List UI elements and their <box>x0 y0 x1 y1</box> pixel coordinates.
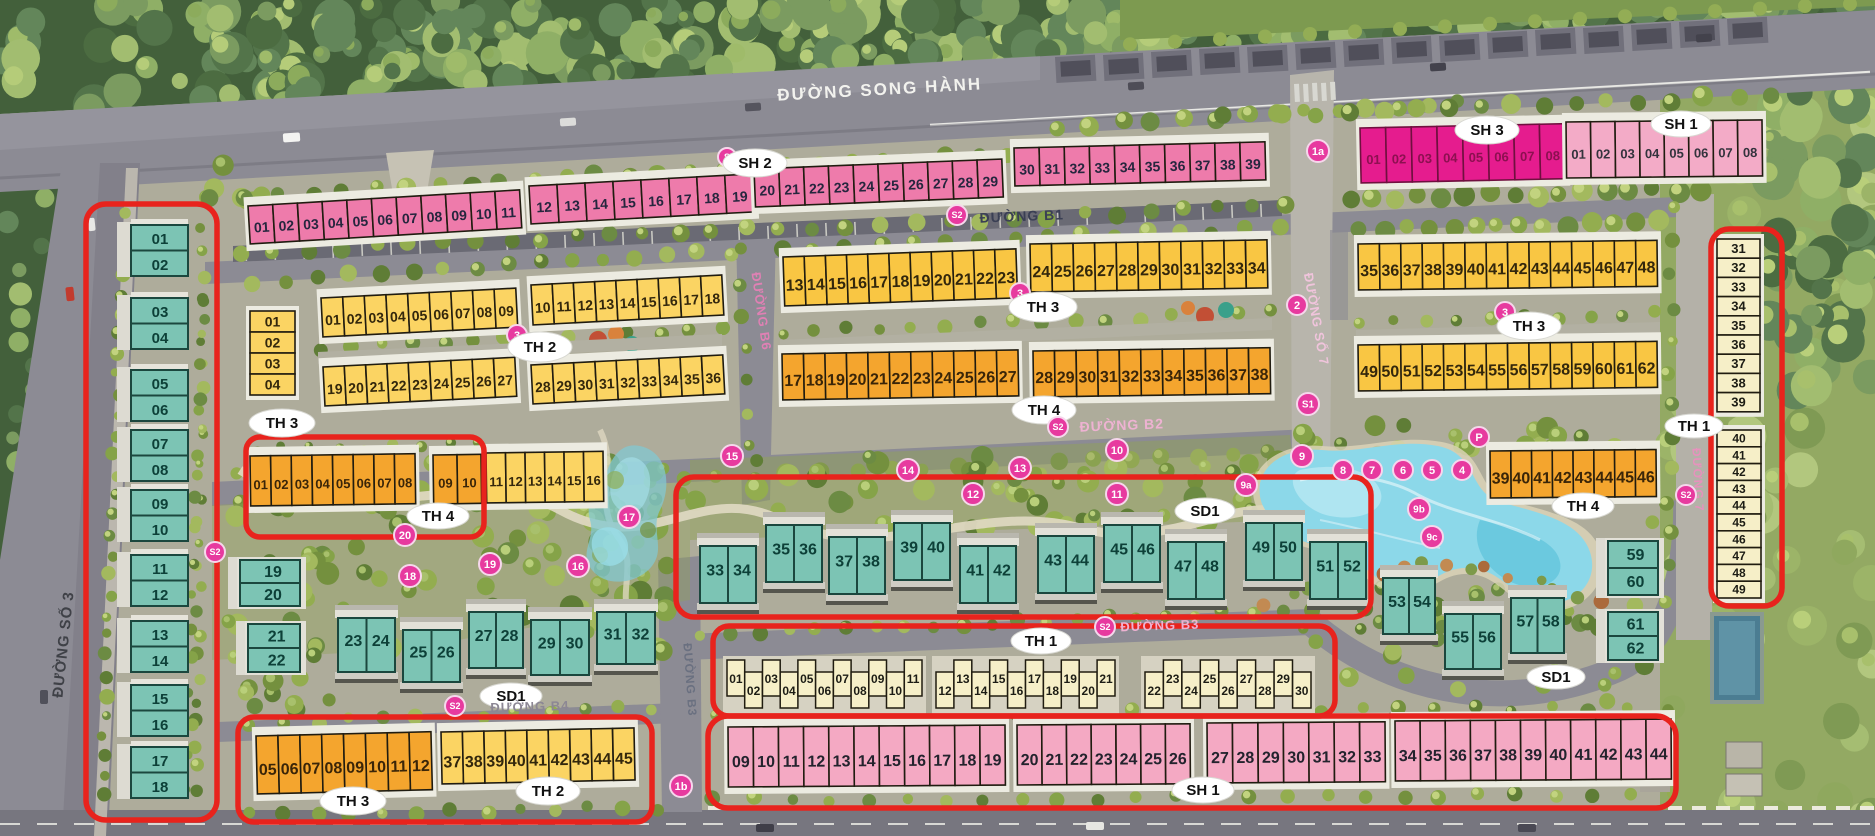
svg-text:12: 12 <box>536 199 553 216</box>
svg-text:52: 52 <box>1343 558 1361 575</box>
svg-text:08: 08 <box>426 208 443 225</box>
svg-text:58: 58 <box>1552 362 1570 379</box>
svg-text:06: 06 <box>433 306 450 323</box>
svg-text:25: 25 <box>1203 672 1217 686</box>
svg-text:44: 44 <box>1732 499 1746 513</box>
svg-text:08: 08 <box>476 304 493 321</box>
svg-text:37: 37 <box>1195 157 1211 173</box>
svg-text:01: 01 <box>152 231 169 248</box>
svg-text:14: 14 <box>592 196 609 213</box>
svg-text:38: 38 <box>862 553 880 570</box>
svg-text:15: 15 <box>620 194 637 211</box>
svg-text:13: 13 <box>152 627 169 644</box>
svg-text:34: 34 <box>1399 748 1417 765</box>
svg-text:13: 13 <box>528 474 543 489</box>
svg-text:26: 26 <box>437 644 455 661</box>
svg-text:10: 10 <box>368 759 386 776</box>
svg-text:41: 41 <box>1574 747 1592 764</box>
svg-text:03: 03 <box>265 355 281 371</box>
svg-text:23: 23 <box>1095 752 1113 769</box>
svg-text:18: 18 <box>958 752 976 769</box>
svg-text:30: 30 <box>577 376 594 393</box>
svg-text:09: 09 <box>451 207 468 224</box>
svg-text:10: 10 <box>152 522 169 539</box>
svg-text:03: 03 <box>368 309 385 326</box>
svg-text:27: 27 <box>1097 263 1115 280</box>
svg-text:35: 35 <box>1186 368 1204 385</box>
svg-text:36: 36 <box>1170 158 1186 174</box>
svg-text:33: 33 <box>1143 368 1161 385</box>
svg-text:19: 19 <box>1064 672 1078 686</box>
svg-text:42: 42 <box>1510 261 1528 278</box>
svg-text:01: 01 <box>265 313 281 329</box>
svg-text:28: 28 <box>1035 370 1053 387</box>
svg-text:30: 30 <box>1287 750 1305 767</box>
svg-text:32: 32 <box>620 374 637 391</box>
svg-text:SD1: SD1 <box>1190 503 1219 520</box>
svg-text:33: 33 <box>1226 261 1244 278</box>
svg-text:11: 11 <box>907 672 920 686</box>
svg-text:59: 59 <box>1627 547 1645 564</box>
svg-text:54: 54 <box>1413 594 1431 611</box>
svg-text:03: 03 <box>152 304 169 321</box>
svg-text:46: 46 <box>1137 541 1155 558</box>
svg-text:03: 03 <box>1417 151 1432 166</box>
svg-text:06: 06 <box>818 684 832 698</box>
svg-text:42: 42 <box>1600 747 1618 764</box>
svg-text:14: 14 <box>807 276 825 294</box>
svg-text:47: 47 <box>1174 558 1192 575</box>
svg-text:08: 08 <box>1743 145 1758 160</box>
svg-text:41: 41 <box>966 562 984 579</box>
svg-text:13: 13 <box>785 277 803 295</box>
svg-text:48: 48 <box>1638 259 1656 276</box>
svg-text:38: 38 <box>1499 747 1517 764</box>
svg-text:20: 20 <box>348 379 365 396</box>
svg-text:39: 39 <box>1524 747 1542 764</box>
svg-text:46: 46 <box>1732 532 1746 546</box>
svg-text:S2: S2 <box>1099 622 1110 632</box>
svg-text:14: 14 <box>974 684 988 698</box>
svg-text:03: 03 <box>295 477 310 492</box>
svg-text:09: 09 <box>871 672 885 686</box>
svg-text:12: 12 <box>967 489 979 501</box>
svg-text:07: 07 <box>1520 149 1535 164</box>
svg-text:06: 06 <box>281 761 299 778</box>
svg-text:17: 17 <box>676 191 693 208</box>
svg-text:32: 32 <box>1731 260 1745 275</box>
svg-text:50: 50 <box>1279 539 1297 556</box>
svg-text:07: 07 <box>377 475 392 490</box>
svg-text:40: 40 <box>927 539 945 556</box>
svg-text:34: 34 <box>662 372 679 389</box>
svg-text:21: 21 <box>268 628 286 645</box>
svg-text:35: 35 <box>772 541 790 558</box>
svg-text:29: 29 <box>556 377 573 394</box>
svg-text:12: 12 <box>807 754 825 771</box>
svg-text:38: 38 <box>1251 367 1269 384</box>
svg-text:35: 35 <box>1145 158 1161 174</box>
svg-text:18: 18 <box>404 571 416 583</box>
svg-text:26: 26 <box>1075 263 1093 280</box>
svg-text:47: 47 <box>1732 549 1746 563</box>
svg-text:25: 25 <box>956 370 974 387</box>
svg-text:27: 27 <box>933 175 949 192</box>
svg-text:TH 2: TH 2 <box>524 339 557 356</box>
svg-text:61: 61 <box>1616 361 1634 378</box>
svg-text:SD1: SD1 <box>1541 669 1570 686</box>
svg-text:52: 52 <box>1424 363 1442 380</box>
svg-text:40: 40 <box>1467 262 1485 279</box>
svg-text:38: 38 <box>1731 375 1745 390</box>
svg-text:SH 2: SH 2 <box>738 155 771 172</box>
svg-text:1b: 1b <box>675 781 688 793</box>
svg-text:TH 3: TH 3 <box>1027 299 1060 316</box>
svg-text:19: 19 <box>984 752 1002 769</box>
svg-text:29: 29 <box>982 173 998 190</box>
svg-text:20: 20 <box>849 372 867 389</box>
svg-text:07: 07 <box>836 672 850 686</box>
svg-text:12: 12 <box>152 587 169 604</box>
svg-text:56: 56 <box>1510 362 1528 379</box>
svg-text:17: 17 <box>1028 672 1042 686</box>
svg-text:27: 27 <box>1211 750 1229 767</box>
svg-text:06: 06 <box>1694 145 1709 160</box>
svg-text:25: 25 <box>1054 264 1072 281</box>
svg-text:03: 03 <box>765 672 779 686</box>
svg-text:26: 26 <box>908 176 924 193</box>
svg-text:07: 07 <box>1718 145 1733 160</box>
svg-text:16: 16 <box>908 753 926 770</box>
svg-text:31: 31 <box>1313 749 1331 766</box>
svg-text:5: 5 <box>1429 465 1435 477</box>
svg-text:44: 44 <box>1595 470 1613 487</box>
svg-text:17: 17 <box>870 274 888 292</box>
svg-text:12: 12 <box>938 684 952 698</box>
svg-text:07: 07 <box>152 436 169 453</box>
svg-text:22: 22 <box>809 180 825 197</box>
svg-text:32: 32 <box>632 626 650 643</box>
svg-text:27: 27 <box>999 369 1017 386</box>
svg-text:18: 18 <box>806 372 824 389</box>
svg-text:ĐƯỜNG B3: ĐƯỜNG B3 <box>1120 617 1199 635</box>
svg-text:P: P <box>1475 432 1482 444</box>
svg-text:SH 1: SH 1 <box>1186 782 1219 799</box>
svg-text:23: 23 <box>345 633 363 650</box>
svg-text:39: 39 <box>1445 262 1463 279</box>
svg-text:8: 8 <box>1340 465 1346 477</box>
svg-text:39: 39 <box>1731 395 1745 410</box>
svg-text:05: 05 <box>336 476 351 491</box>
svg-text:30: 30 <box>1295 684 1309 698</box>
svg-text:04: 04 <box>315 476 330 491</box>
svg-text:40: 40 <box>508 753 526 770</box>
svg-text:9b: 9b <box>1413 505 1425 516</box>
svg-text:49: 49 <box>1732 583 1746 597</box>
svg-text:TH 4: TH 4 <box>422 508 455 525</box>
svg-text:TH 1: TH 1 <box>1678 418 1711 435</box>
svg-text:16: 16 <box>662 292 679 309</box>
svg-text:13: 13 <box>598 296 615 313</box>
svg-text:9: 9 <box>1299 451 1305 463</box>
svg-text:01: 01 <box>1366 152 1381 167</box>
svg-text:28: 28 <box>535 378 552 395</box>
svg-text:32: 32 <box>1069 160 1085 176</box>
svg-text:36: 36 <box>799 541 817 558</box>
svg-text:08: 08 <box>398 475 413 490</box>
svg-text:33: 33 <box>1731 279 1745 294</box>
svg-text:08: 08 <box>853 684 867 698</box>
svg-text:37: 37 <box>1731 356 1745 371</box>
svg-text:40: 40 <box>1512 470 1530 487</box>
svg-text:36: 36 <box>1207 367 1225 384</box>
svg-text:10: 10 <box>462 475 477 490</box>
svg-text:36: 36 <box>705 369 722 386</box>
svg-text:51: 51 <box>1316 558 1334 575</box>
svg-text:22: 22 <box>891 371 909 388</box>
svg-text:20: 20 <box>1082 684 1096 698</box>
svg-text:20: 20 <box>264 587 282 604</box>
svg-text:12: 12 <box>412 758 430 775</box>
svg-text:43: 43 <box>572 751 590 768</box>
svg-text:21: 21 <box>955 271 973 289</box>
svg-text:54: 54 <box>1467 363 1485 380</box>
svg-text:11: 11 <box>556 298 572 315</box>
svg-text:S2: S2 <box>1052 422 1063 432</box>
svg-text:31: 31 <box>1731 241 1745 256</box>
svg-text:39: 39 <box>486 753 504 770</box>
svg-text:16: 16 <box>152 717 169 734</box>
svg-text:05: 05 <box>800 672 814 686</box>
svg-text:18: 18 <box>1046 684 1060 698</box>
svg-text:21: 21 <box>1099 672 1113 686</box>
svg-text:59: 59 <box>1574 361 1592 378</box>
svg-text:18: 18 <box>152 779 169 796</box>
svg-text:43: 43 <box>1732 482 1746 496</box>
svg-text:14: 14 <box>547 473 562 488</box>
svg-text:04: 04 <box>390 308 407 325</box>
svg-text:13: 13 <box>956 672 970 686</box>
svg-text:SH 3: SH 3 <box>1470 122 1503 139</box>
svg-text:29: 29 <box>1140 262 1158 279</box>
svg-text:61: 61 <box>1627 616 1645 633</box>
svg-text:S2: S2 <box>449 701 460 711</box>
svg-text:21: 21 <box>1045 752 1063 769</box>
svg-text:31: 31 <box>1100 369 1118 386</box>
svg-text:43: 43 <box>1044 552 1062 569</box>
svg-text:10: 10 <box>889 684 903 698</box>
svg-text:29: 29 <box>1262 750 1280 767</box>
svg-text:57: 57 <box>1516 614 1534 631</box>
svg-text:14: 14 <box>858 753 876 770</box>
svg-text:15: 15 <box>828 276 846 294</box>
svg-text:45: 45 <box>1110 541 1128 558</box>
svg-text:TH 3: TH 3 <box>337 793 370 810</box>
svg-text:36: 36 <box>1731 337 1745 352</box>
svg-text:43: 43 <box>1531 261 1549 278</box>
svg-text:31: 31 <box>1183 261 1201 278</box>
svg-text:09: 09 <box>152 496 169 513</box>
svg-text:60: 60 <box>1627 574 1645 591</box>
svg-text:05: 05 <box>1469 150 1484 165</box>
svg-text:41: 41 <box>1533 470 1551 487</box>
svg-text:42: 42 <box>550 752 568 769</box>
svg-text:23: 23 <box>913 371 931 388</box>
svg-text:27: 27 <box>497 372 514 389</box>
svg-text:24: 24 <box>934 370 952 387</box>
svg-text:55: 55 <box>1488 362 1506 379</box>
svg-text:22: 22 <box>1148 684 1162 698</box>
svg-text:2: 2 <box>1294 300 1300 312</box>
svg-text:19: 19 <box>264 564 282 581</box>
svg-text:39: 39 <box>900 539 918 556</box>
svg-text:06: 06 <box>377 211 394 228</box>
svg-text:01: 01 <box>253 219 270 236</box>
svg-text:01: 01 <box>325 311 342 328</box>
svg-text:06: 06 <box>1494 149 1509 164</box>
svg-text:34: 34 <box>733 562 751 579</box>
svg-text:50: 50 <box>1381 364 1399 381</box>
svg-text:16: 16 <box>648 193 665 210</box>
svg-text:37: 37 <box>1229 367 1247 384</box>
svg-text:03: 03 <box>1620 146 1635 161</box>
svg-text:12: 12 <box>508 474 523 489</box>
svg-text:44: 44 <box>1071 552 1089 569</box>
svg-text:38: 38 <box>1220 156 1236 172</box>
svg-text:26: 26 <box>977 369 995 386</box>
svg-text:30: 30 <box>1078 369 1096 386</box>
svg-text:43: 43 <box>1625 746 1643 763</box>
svg-text:03: 03 <box>303 216 320 233</box>
svg-text:11: 11 <box>489 474 503 489</box>
svg-text:20: 20 <box>759 182 775 199</box>
svg-text:24: 24 <box>1119 751 1137 768</box>
svg-text:53: 53 <box>1445 363 1463 380</box>
svg-text:41: 41 <box>1732 448 1746 462</box>
svg-text:19: 19 <box>327 380 344 397</box>
svg-text:17: 17 <box>152 753 169 770</box>
svg-text:22: 22 <box>391 377 408 394</box>
svg-text:24: 24 <box>433 375 450 392</box>
svg-text:01: 01 <box>729 672 743 686</box>
svg-text:11: 11 <box>783 754 800 771</box>
svg-text:02: 02 <box>747 684 761 698</box>
svg-text:36: 36 <box>1449 748 1467 765</box>
svg-text:28: 28 <box>957 174 973 191</box>
svg-text:37: 37 <box>443 754 461 771</box>
svg-text:32: 32 <box>1121 369 1139 386</box>
svg-text:20: 20 <box>934 272 952 290</box>
svg-text:49: 49 <box>1360 364 1378 381</box>
svg-text:17: 17 <box>784 373 802 390</box>
svg-text:11: 11 <box>501 204 517 221</box>
svg-text:29: 29 <box>1277 672 1291 686</box>
svg-text:05: 05 <box>259 762 277 779</box>
svg-text:09: 09 <box>498 303 515 320</box>
svg-text:08: 08 <box>152 462 169 479</box>
svg-text:04: 04 <box>327 214 344 231</box>
svg-text:62: 62 <box>1638 360 1656 377</box>
svg-text:34: 34 <box>1248 260 1266 277</box>
svg-text:40: 40 <box>1732 432 1746 446</box>
svg-text:35: 35 <box>1424 748 1442 765</box>
svg-text:35: 35 <box>1731 318 1745 333</box>
svg-text:16: 16 <box>586 473 601 488</box>
svg-text:49: 49 <box>1252 539 1270 556</box>
svg-text:15: 15 <box>883 753 901 770</box>
svg-text:25: 25 <box>410 644 428 661</box>
svg-text:14: 14 <box>152 653 169 670</box>
svg-text:16: 16 <box>572 561 584 573</box>
svg-text:27: 27 <box>475 628 493 645</box>
svg-text:24: 24 <box>1184 684 1198 698</box>
svg-text:42: 42 <box>1554 470 1572 487</box>
svg-text:23: 23 <box>1166 672 1180 686</box>
svg-text:08: 08 <box>1545 148 1560 163</box>
svg-text:TH 3: TH 3 <box>266 415 299 432</box>
svg-text:S2: S2 <box>951 210 962 220</box>
svg-text:34: 34 <box>1164 368 1182 385</box>
svg-text:21: 21 <box>369 378 386 395</box>
svg-text:60: 60 <box>1595 361 1613 378</box>
svg-text:24: 24 <box>858 178 874 195</box>
svg-text:7: 7 <box>1369 465 1375 477</box>
svg-text:33: 33 <box>1364 749 1382 766</box>
svg-text:02: 02 <box>278 217 295 234</box>
svg-text:42: 42 <box>1732 465 1746 479</box>
svg-text:28: 28 <box>1118 262 1136 279</box>
svg-text:09: 09 <box>732 754 750 771</box>
svg-text:18: 18 <box>704 290 721 307</box>
svg-text:44: 44 <box>1650 746 1668 763</box>
svg-text:05: 05 <box>152 376 169 393</box>
svg-text:45: 45 <box>1574 260 1592 277</box>
svg-text:46: 46 <box>1637 469 1655 486</box>
svg-text:31: 31 <box>1044 161 1060 177</box>
svg-text:21: 21 <box>784 181 800 198</box>
svg-text:32: 32 <box>1205 261 1223 278</box>
svg-text:28: 28 <box>1258 684 1272 698</box>
svg-text:22: 22 <box>1070 752 1088 769</box>
svg-text:02: 02 <box>265 334 281 350</box>
svg-text:10: 10 <box>535 299 552 316</box>
svg-text:29: 29 <box>538 636 556 653</box>
svg-text:30: 30 <box>566 636 584 653</box>
svg-text:45: 45 <box>1616 469 1634 486</box>
svg-text:16: 16 <box>1010 684 1024 698</box>
svg-text:26: 26 <box>1169 751 1187 768</box>
svg-text:20: 20 <box>399 530 411 542</box>
svg-text:14: 14 <box>902 465 915 477</box>
svg-text:42: 42 <box>993 562 1011 579</box>
svg-text:16: 16 <box>849 275 867 293</box>
svg-text:47: 47 <box>1616 260 1634 277</box>
svg-text:06: 06 <box>356 476 371 491</box>
svg-text:48: 48 <box>1732 566 1746 580</box>
svg-text:ĐƯỜNG B4: ĐƯỜNG B4 <box>490 698 569 715</box>
svg-text:10: 10 <box>1111 445 1123 457</box>
svg-text:07: 07 <box>455 305 472 322</box>
svg-text:28: 28 <box>1236 750 1254 767</box>
svg-text:53: 53 <box>1388 594 1406 611</box>
svg-text:24: 24 <box>1032 264 1050 281</box>
svg-text:S1: S1 <box>1302 400 1315 411</box>
svg-text:55: 55 <box>1451 630 1469 647</box>
svg-text:25: 25 <box>883 177 899 194</box>
svg-text:27: 27 <box>1240 672 1254 686</box>
svg-text:35: 35 <box>684 371 701 388</box>
svg-text:57: 57 <box>1531 362 1549 379</box>
